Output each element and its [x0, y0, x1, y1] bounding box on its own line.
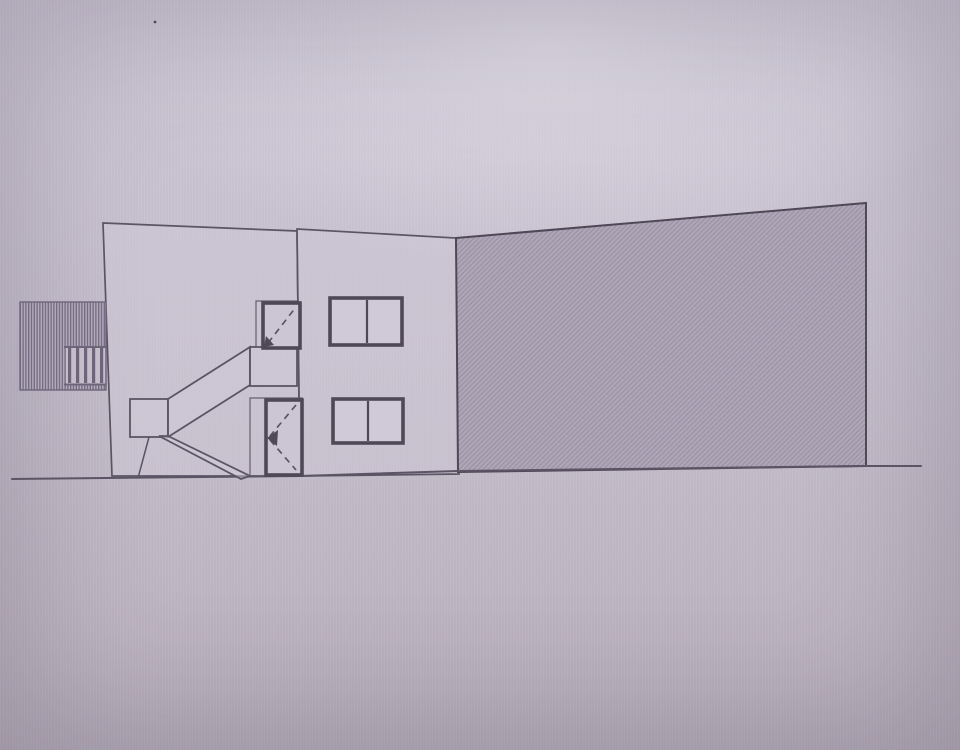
louver-bar	[92, 348, 95, 383]
stair-platform	[130, 399, 168, 437]
hatched-wall	[456, 203, 866, 472]
stair-landing	[250, 347, 297, 386]
elevation-drawing	[0, 0, 960, 750]
louver-bar	[84, 348, 87, 383]
dust-speck	[154, 21, 157, 24]
screen-photo	[0, 0, 960, 750]
louver-bar	[68, 348, 71, 383]
drawing-layers	[12, 21, 921, 479]
louver-bar	[76, 348, 79, 383]
louver-bar	[100, 348, 103, 383]
